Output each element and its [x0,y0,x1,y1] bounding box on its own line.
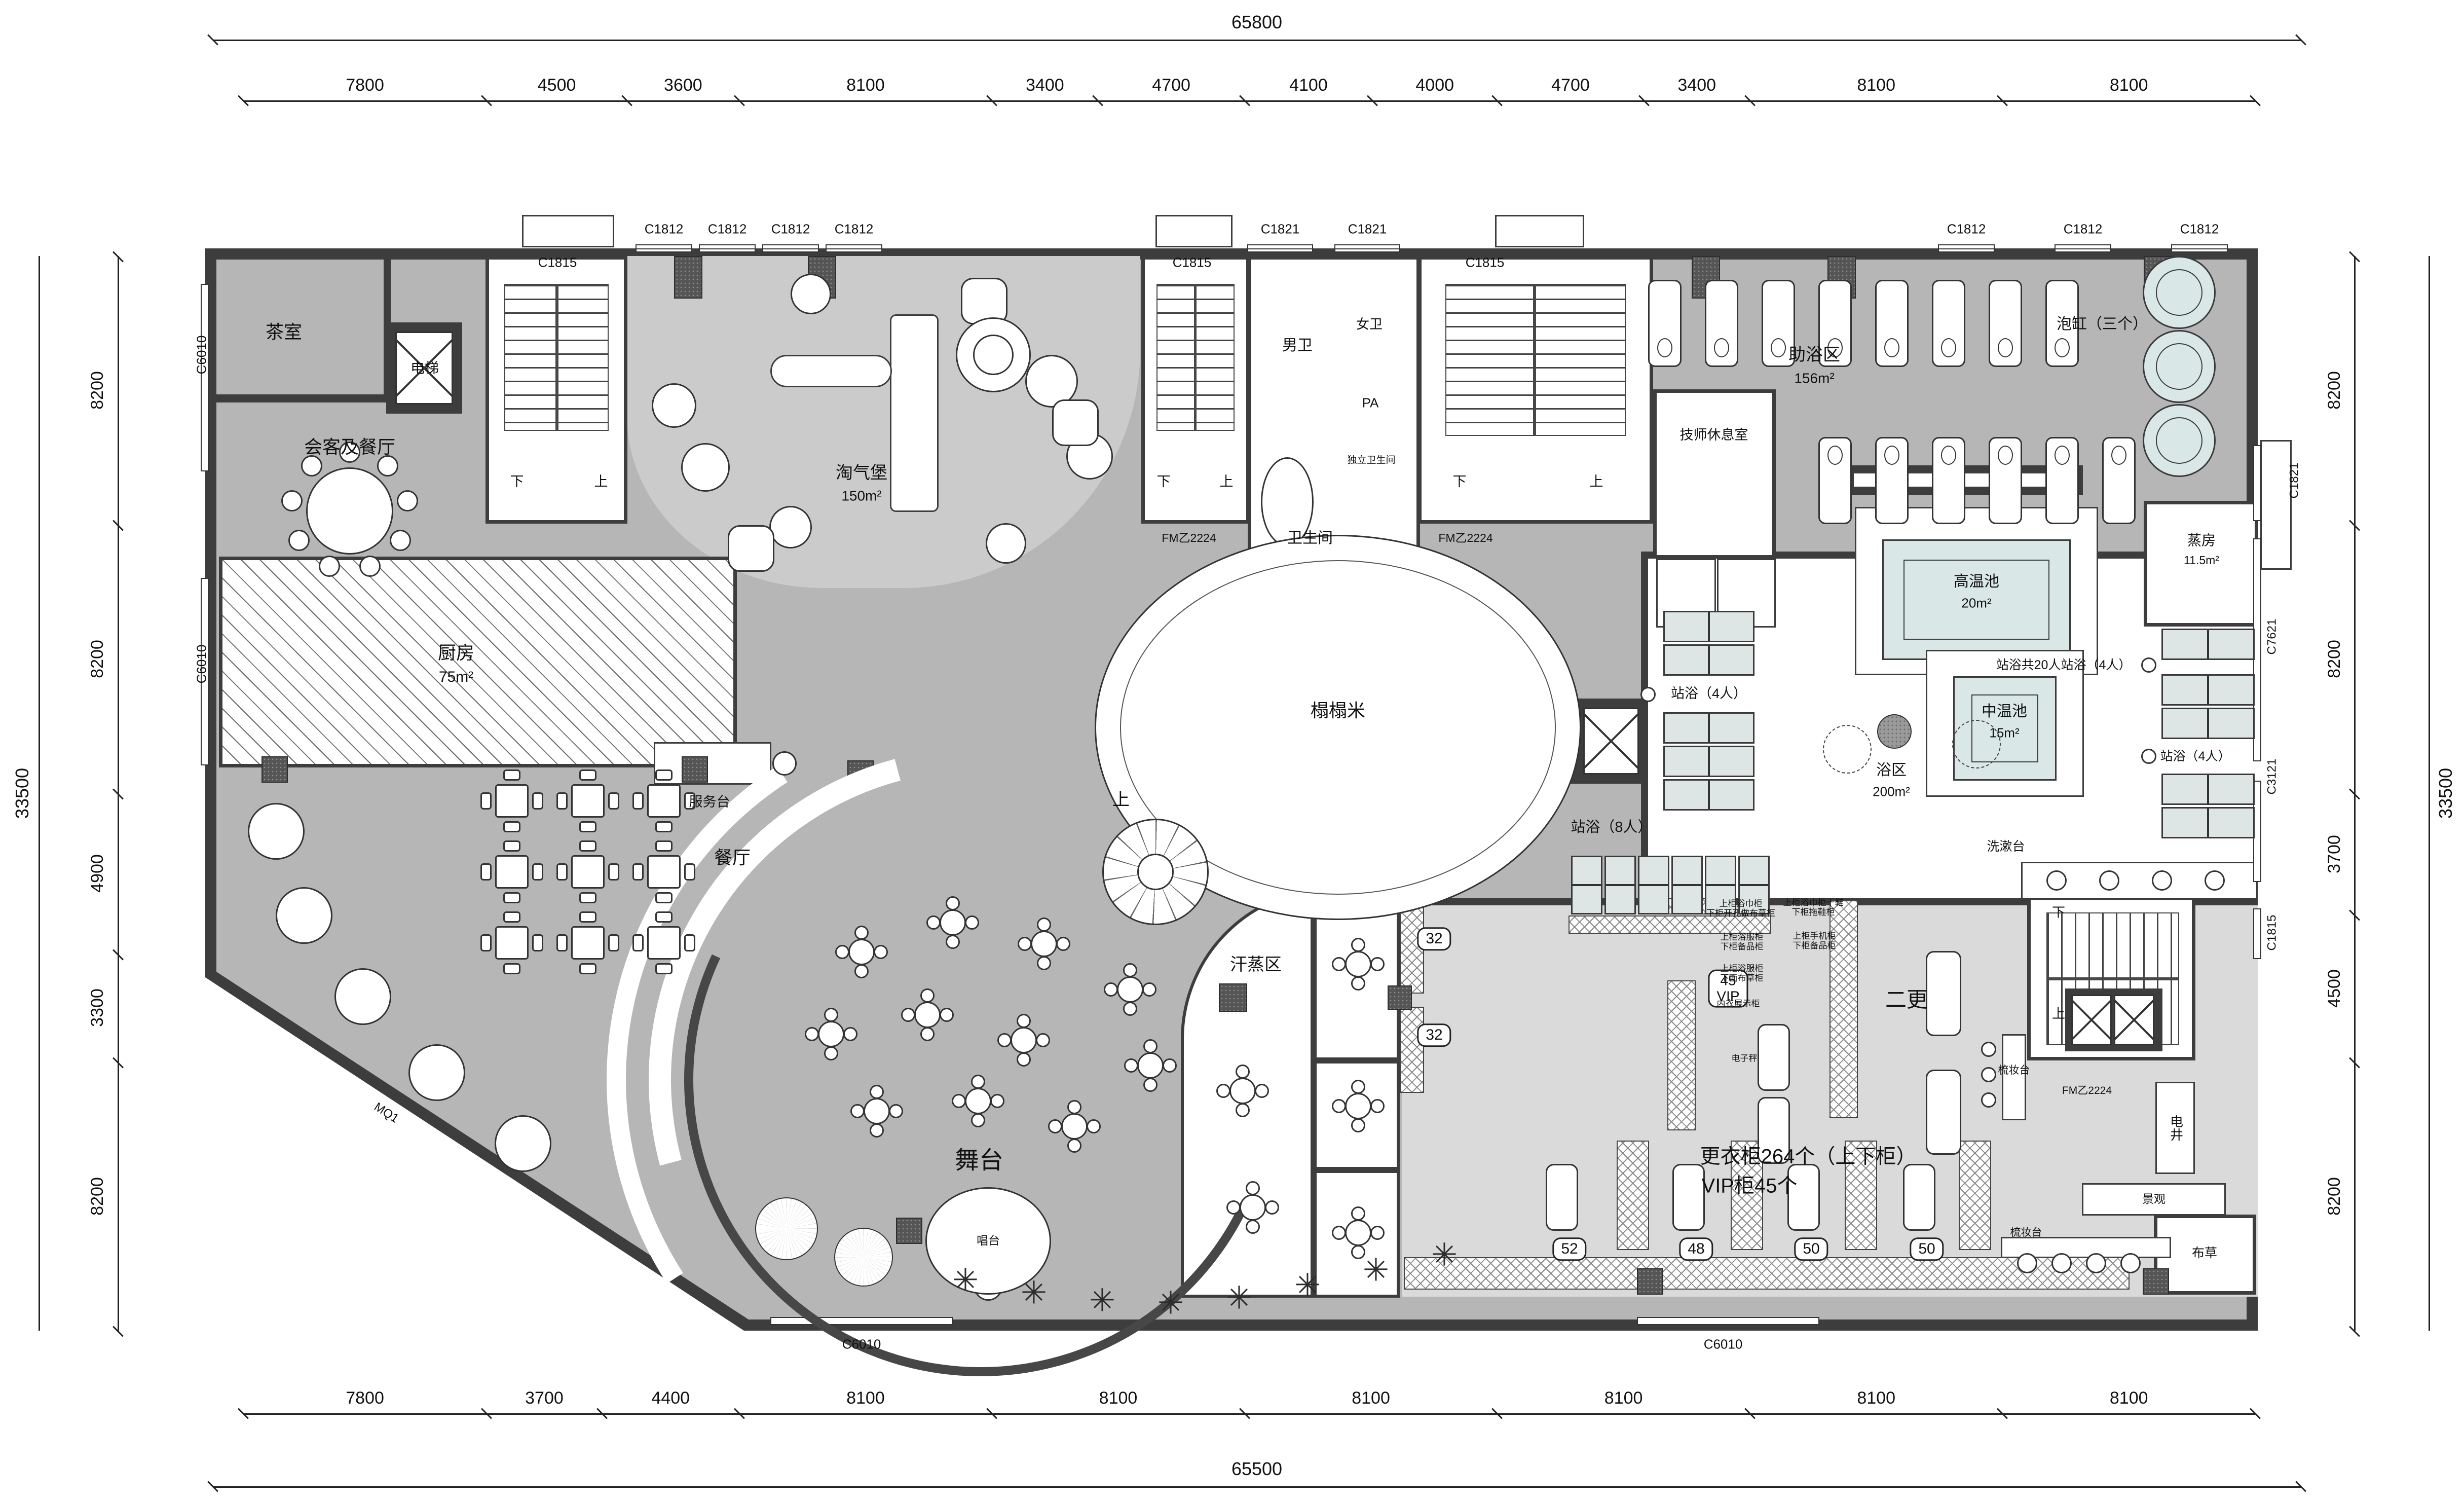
dim-label: 3600 [664,76,702,95]
dim-label: 8100 [1099,1388,1138,1408]
code-label: C1812 [1947,222,1986,236]
room-label: 餐厅 [714,848,751,868]
dim-total-label: 33500 [2436,768,2456,819]
chair [632,863,644,881]
stair-label: 上 [1590,474,1603,489]
room-label: 上 [1112,790,1130,810]
room-label: 景观 [2142,1193,2166,1206]
dim-label: 8100 [2110,76,2148,95]
chair [1037,956,1051,970]
code-label: C1812 [2180,222,2219,236]
room-label: 75m² [439,669,473,686]
note-label: 上柜浴服柜 下面布草柜 [1721,964,1764,983]
chair [1351,1118,1365,1132]
chair [1017,1052,1031,1067]
table [1117,976,1143,1003]
count-label: 52 [1552,1237,1586,1261]
room-label: 站浴共20人站浴（4人） [1996,658,2132,672]
plant-icon: ✳ [1021,1274,1047,1311]
chair [901,1008,915,1022]
code-label: C1815 [1466,255,1505,270]
chair [1056,937,1070,951]
shower-cubicle [2161,708,2255,739]
chair [854,964,869,978]
room-label: 150m² [841,488,881,503]
dim-label: 8100 [1857,1388,1895,1408]
bench [1926,951,1961,1036]
vanity-counter [2002,1034,2026,1120]
dimension-line [213,1486,2301,1488]
stool [2120,1253,2141,1273]
chair [1067,1139,1081,1153]
chair [579,840,596,852]
plant-icon: ✳ [952,1262,979,1299]
shower-cubicle [1663,644,1754,676]
room-label: 200m² [1873,784,1910,799]
chair [579,892,596,903]
chair [532,934,543,951]
chair [854,926,869,940]
code-label: C1821 [1348,222,1387,236]
play-spiral-inner [973,335,1014,375]
chair [1017,1014,1031,1028]
column [674,256,702,299]
chair [990,1094,1004,1108]
dim-label: 4900 [88,855,107,893]
window [2055,244,2111,252]
shower-cubicle [2161,674,2255,706]
dim-label: 3400 [1677,76,1716,95]
tap [2141,657,2156,673]
table [1345,1093,1371,1119]
shower-cubicle [1663,712,1754,744]
chair [926,915,941,930]
window [762,244,819,252]
room-label: 站浴（8人） [1571,819,1652,835]
chair [480,792,492,810]
room-label: 男卫 [1282,337,1313,354]
dim-label: 4100 [1289,76,1328,95]
stool [772,751,797,776]
massage-bed [1818,437,1852,524]
room-label: 汗蒸区 [1230,955,1282,974]
basin [2099,870,2119,891]
table [914,1002,941,1028]
chair [870,1123,884,1138]
dim-label: 3300 [88,989,107,1028]
room-label: 卫生间 [1287,530,1333,547]
room-label: 厨房 [438,643,474,663]
table [1345,1220,1371,1246]
chair [684,934,695,951]
chair [655,911,673,923]
tree [755,1197,818,1260]
stool [2017,1253,2037,1273]
chair [1236,1065,1250,1079]
elevator-car [2114,995,2154,1045]
chair [1246,1220,1260,1234]
table [965,1088,991,1114]
stool [1981,1067,1996,1082]
shower-cubicle [1638,856,1669,914]
dim-total-label: 65500 [1231,1459,1282,1479]
elevator-car [1583,708,1639,775]
room-label: 榻榻米 [1311,701,1365,721]
tree [834,1228,893,1287]
chair [377,455,398,476]
bench [1903,1164,1935,1231]
dim-label: 4500 [2325,969,2344,1008]
floor-plan: ✳✳✳✳✳✳✳✳ 茶室电梯会客及餐厅厨房75m²淘气堡150m²男卫女卫PA独立… [0,0,2464,1503]
window [2253,908,2261,959]
chair [503,769,520,781]
window [1247,244,1313,252]
chair [824,1008,838,1022]
chair [889,1104,903,1118]
table [1061,1113,1088,1140]
dim-label: 4700 [1551,76,1590,95]
dim-label: 8100 [2110,1388,2148,1408]
room-label: 梳妆台 [1998,1065,2030,1077]
code-label: C1812 [771,222,810,236]
note-label: 电子秤 [1732,1053,1758,1063]
elevator-car [2071,995,2112,1045]
dim-label: 8100 [1857,76,1895,95]
room-label: 高温池 [1954,573,1999,591]
chair [480,934,492,951]
bench [1546,1164,1578,1231]
chair [920,988,935,1003]
chair [1036,1033,1050,1047]
column [1637,1268,1663,1295]
code-label: MQ1 [371,1101,401,1126]
room-label: 电井 [2168,1115,2183,1141]
chair [874,945,888,959]
column [2143,1268,2169,1295]
stair-label: 下 [2052,905,2065,920]
chair [843,1027,857,1041]
massage-bed [1989,437,2022,524]
locker-bank [1400,1007,1424,1093]
shower-cubicle [2161,774,2255,805]
table [495,784,529,818]
kitchen [219,557,737,767]
tap [2141,749,2156,764]
dim-label: 3700 [2325,835,2344,873]
room-label: 更衣柜264个（上下柜） [1700,1146,1917,1168]
code-label: C7621 [2266,619,2280,655]
chair [1216,1084,1230,1098]
code-label: FM乙2224 [1438,532,1492,545]
room-label: 独立卫生间 [1347,455,1395,465]
code-label: C1812 [2064,222,2103,236]
play-ball [652,383,696,428]
chair [1332,957,1346,971]
column [1388,985,1412,1010]
table [818,1021,844,1047]
stool [1981,1092,1996,1108]
chair [1048,1119,1062,1133]
code-label: FM乙2224 [2062,1085,2112,1097]
chair [655,892,673,903]
chair [1087,1119,1101,1133]
locker-bank [1569,915,1771,934]
plant-icon: ✳ [1294,1267,1321,1304]
chair [1124,1058,1138,1073]
room-label: 唱台 [977,1234,1000,1248]
code-label: C3121 [2266,759,2280,795]
balcony [2260,440,2292,570]
chair [503,892,520,903]
locker-bank [1667,980,1696,1130]
shower-cubicle [1663,746,1754,777]
table [940,909,966,936]
entry-canopy [1495,215,1584,247]
chair [632,934,644,951]
play-ball [986,523,1026,564]
plant-icon: ✳ [1158,1285,1184,1322]
chair [608,934,619,951]
chair [965,915,979,930]
chair [532,792,543,810]
chair [1351,938,1365,952]
chair [556,934,568,951]
chair [655,963,673,974]
note-label: 上柜手机柜 下柜备品柜 [1793,931,1836,950]
chair [655,821,673,832]
room-label: 浴区 [1876,762,1907,779]
chair [579,769,596,781]
table [848,939,875,965]
code-label: C6010 [194,645,209,684]
room-label: 蒸房 [2187,532,2216,548]
chair [1104,982,1118,997]
room-label: 泡缸（三个） [2057,316,2148,333]
staff-room [1653,389,1776,559]
chair [579,963,596,974]
chair [946,896,960,910]
dim-label: 8200 [2325,1177,2344,1216]
room-label: 女卫 [1356,317,1383,332]
chair [579,821,596,832]
chair [655,840,673,852]
dimension-line [243,1413,2255,1415]
note-label: 内衣展示柜 [1717,999,1760,1008]
table [1031,931,1057,957]
dim-label: 8200 [88,640,107,678]
chair [556,792,568,810]
room-label: 站浴（4人） [1671,686,1747,701]
dim-total-label: 33500 [12,768,32,819]
plant-icon: ✳ [1226,1279,1252,1316]
chair [1018,937,1032,951]
shower-cubicle [2161,629,2255,660]
play-mat [961,278,1007,324]
chair [1370,1226,1385,1240]
round-table [334,968,391,1025]
dimension-line [243,100,2255,102]
chair [608,792,619,810]
stair-label: 下 [1453,474,1467,489]
code-label: C1821 [1261,222,1300,236]
dim-label: 7800 [346,1388,384,1408]
column [262,756,288,783]
play-mat [1052,399,1099,446]
play-mat [728,525,774,572]
chair [359,556,381,577]
table [571,784,605,818]
code-label: C6010 [1704,1337,1743,1351]
plant-icon: ✳ [1431,1236,1458,1273]
chair [997,1033,1012,1047]
room-label: 15m² [1989,725,2019,740]
window [1334,244,1400,252]
window [1938,244,1995,252]
code-label: C6010 [194,336,209,375]
room-label: 助浴区 [1788,345,1840,364]
chair [319,556,340,577]
massage-bed [1932,280,1965,367]
locker-bank [1959,1141,1991,1250]
plant-icon: ✳ [1089,1282,1115,1319]
chair [288,530,310,551]
note-label: 上柜浴巾柜干鞋 下柜拖鞋柜 [1783,898,1844,917]
banquet-table [306,467,393,555]
room-label: 中温池 [1982,703,2027,720]
shower-cubicle [1604,856,1636,914]
chair [1332,1226,1346,1240]
window [636,244,692,252]
chair [1143,1039,1158,1053]
chair [920,1027,935,1041]
chair [655,769,673,781]
round-table [408,1044,465,1101]
table [647,855,681,889]
stair-label: 上 [594,474,608,489]
dim-label: 4700 [1152,76,1190,95]
chair [1163,1058,1177,1073]
table [647,926,681,960]
chair [532,863,543,881]
dim-label: 8100 [846,1388,885,1408]
dim-label: 8100 [846,76,885,95]
window [201,284,209,471]
stair-label: 下 [510,474,524,489]
dimension-line [213,40,2301,41]
table [495,926,529,960]
chair [480,863,492,881]
note-label: 上柜浴服柜 下柜备品柜 [1721,932,1764,951]
play-ball [791,274,831,314]
room-label: 电梯 [410,360,439,376]
room-label: 站浴（4人） [2160,749,2231,763]
chair [1255,1084,1269,1098]
shower-cubicle [1571,856,1602,914]
count-label: 32 [1417,1023,1451,1047]
count-label: 50 [1910,1237,1944,1261]
chair [503,821,520,832]
chair [1332,1099,1346,1113]
chair [971,1075,985,1089]
plant-icon: ✳ [1363,1252,1389,1289]
window [699,244,756,252]
dim-label: 3400 [1026,76,1064,95]
massage-bed [2045,437,2079,524]
chair [850,1104,865,1118]
massage-bed [1875,280,1909,367]
window [2253,445,2261,521]
count-label: 48 [1679,1237,1713,1261]
code-label: C6010 [842,1337,881,1351]
dim-label: 8100 [1352,1388,1390,1408]
massage-bed [1705,280,1738,367]
room-label: 淘气堡 [836,463,887,483]
chair [971,1113,985,1127]
stair-rail [555,284,558,431]
massage-bed [1989,280,2022,367]
chair [1143,1078,1158,1092]
chair [503,840,520,852]
chair [870,1085,884,1099]
chair [946,935,960,949]
dimension-line [39,256,40,1331]
soak-tub-inner [2156,269,2202,316]
round-column [1877,714,1912,749]
code-label: C1812 [645,222,684,236]
dim-label: 4500 [538,76,576,95]
chair [1123,1002,1137,1016]
column [682,756,708,783]
code-label: C1821 [2288,463,2302,499]
table [495,855,529,889]
play-tower [890,314,939,512]
note-label: 上柜浴巾柜 下柜开孔做布草柜 [1706,899,1775,918]
room-label: PA [1362,395,1379,410]
code-label: FM乙2224 [1162,532,1216,545]
soak-tub-inner [2156,417,2202,464]
stair-label: 上 [1220,474,1234,489]
room-label: 11.5m² [2184,554,2219,567]
chair [835,945,849,959]
chair [940,1008,954,1022]
table [1240,1194,1266,1221]
code-label: C1815 [1173,255,1212,270]
round-table [495,1115,551,1172]
dim-label: 8200 [2325,371,2344,410]
dim-label: 8100 [1604,1388,1643,1408]
room-label: 会客及餐厅 [304,437,395,457]
locker-bank [1617,1141,1649,1250]
chair [1246,1181,1260,1195]
entry-canopy [1155,215,1233,247]
room-label: 技师休息室 [1680,427,1748,443]
stair-rail [2046,977,2179,980]
massage-bed [2102,437,2136,524]
table [1011,1027,1037,1053]
table [647,784,681,818]
room-label: 梳妆台 [2010,1227,2042,1239]
chair [632,792,644,810]
room-label: 茶室 [266,322,302,342]
play-ball [769,506,812,548]
table [571,926,605,960]
bench [1672,1164,1705,1231]
dim-label: 3700 [525,1388,564,1408]
dimension-line [2429,256,2430,1331]
dim-label: 7800 [346,76,384,95]
shower-cubicle [1663,611,1754,642]
round-table [276,887,332,944]
